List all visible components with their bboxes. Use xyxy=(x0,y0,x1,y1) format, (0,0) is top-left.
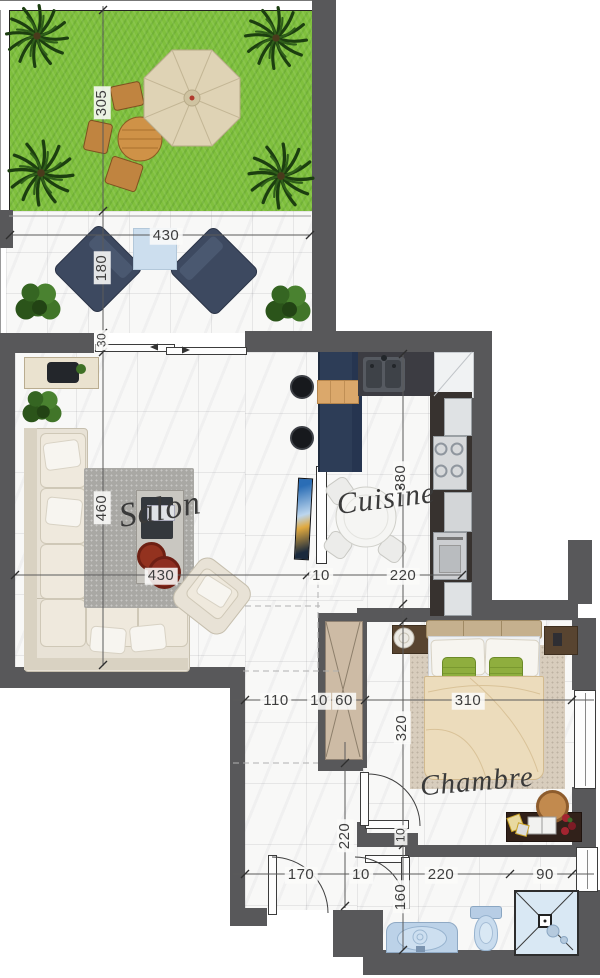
nightstand xyxy=(544,626,578,655)
entry-door-leaf xyxy=(268,855,277,915)
dim-wall-thickness: 30 xyxy=(95,330,108,350)
dim-salon-width: 430 xyxy=(145,568,178,585)
dim-bath-depth: 160 xyxy=(393,881,410,914)
window xyxy=(576,847,598,892)
dim-closet-depth: 60 xyxy=(332,693,356,710)
dim-terrace-depth: 180 xyxy=(94,252,111,285)
nightstand xyxy=(392,625,430,654)
wall xyxy=(230,908,267,926)
sliding-door-panel xyxy=(166,347,247,355)
wall xyxy=(312,0,336,350)
cabinet-front xyxy=(444,582,472,616)
bedroom-window xyxy=(574,690,596,789)
desk-chair xyxy=(536,790,569,823)
cutting-board xyxy=(317,380,359,404)
dim-bedroom-width: 310 xyxy=(452,693,485,710)
kitchen-sink xyxy=(363,357,405,392)
stove xyxy=(433,436,467,490)
closet xyxy=(325,621,363,760)
floor-plan: 305 430 180 30 460 430 10 220 380 110 10… xyxy=(0,0,600,978)
dim-hall-width: 110 xyxy=(260,693,291,710)
wall xyxy=(568,540,592,604)
dim-partition: 10 xyxy=(309,568,333,585)
kitchen-island xyxy=(318,352,362,472)
dim-hall-length: 220 xyxy=(337,820,354,853)
dim-bath-wall: 10 xyxy=(394,825,407,845)
oven xyxy=(433,532,467,580)
bedroom-door-leaf xyxy=(360,772,369,826)
dim-entry-width: 170 xyxy=(285,867,318,884)
dim-garden-depth: 305 xyxy=(94,87,111,120)
tv-partition xyxy=(316,466,327,564)
cabinet-front xyxy=(444,492,472,532)
dim-salon-depth: 460 xyxy=(94,492,111,525)
bathroom-vanity xyxy=(386,922,458,953)
dim-entry-wall: 10 xyxy=(349,867,373,884)
wall xyxy=(405,845,578,857)
dim-kitchen-width: 220 xyxy=(387,568,420,585)
dim-shower-width: 90 xyxy=(533,867,557,884)
wall xyxy=(0,210,13,248)
garden-lawn xyxy=(9,10,313,212)
sofa-back xyxy=(24,428,37,670)
shower xyxy=(514,890,579,956)
dim-bedroom-depth: 320 xyxy=(394,712,411,745)
wall xyxy=(472,600,578,620)
dim-bath-width: 220 xyxy=(425,867,458,884)
wall xyxy=(472,352,492,602)
dim-hall-wall: 10 xyxy=(307,693,331,710)
wall xyxy=(230,688,245,910)
toilet xyxy=(474,915,498,951)
wall xyxy=(0,350,15,688)
sofa-back xyxy=(24,658,188,670)
dim-terrace-width: 430 xyxy=(150,228,183,245)
wall xyxy=(245,331,492,352)
console-table xyxy=(24,357,99,389)
cabinet-front xyxy=(444,398,472,436)
